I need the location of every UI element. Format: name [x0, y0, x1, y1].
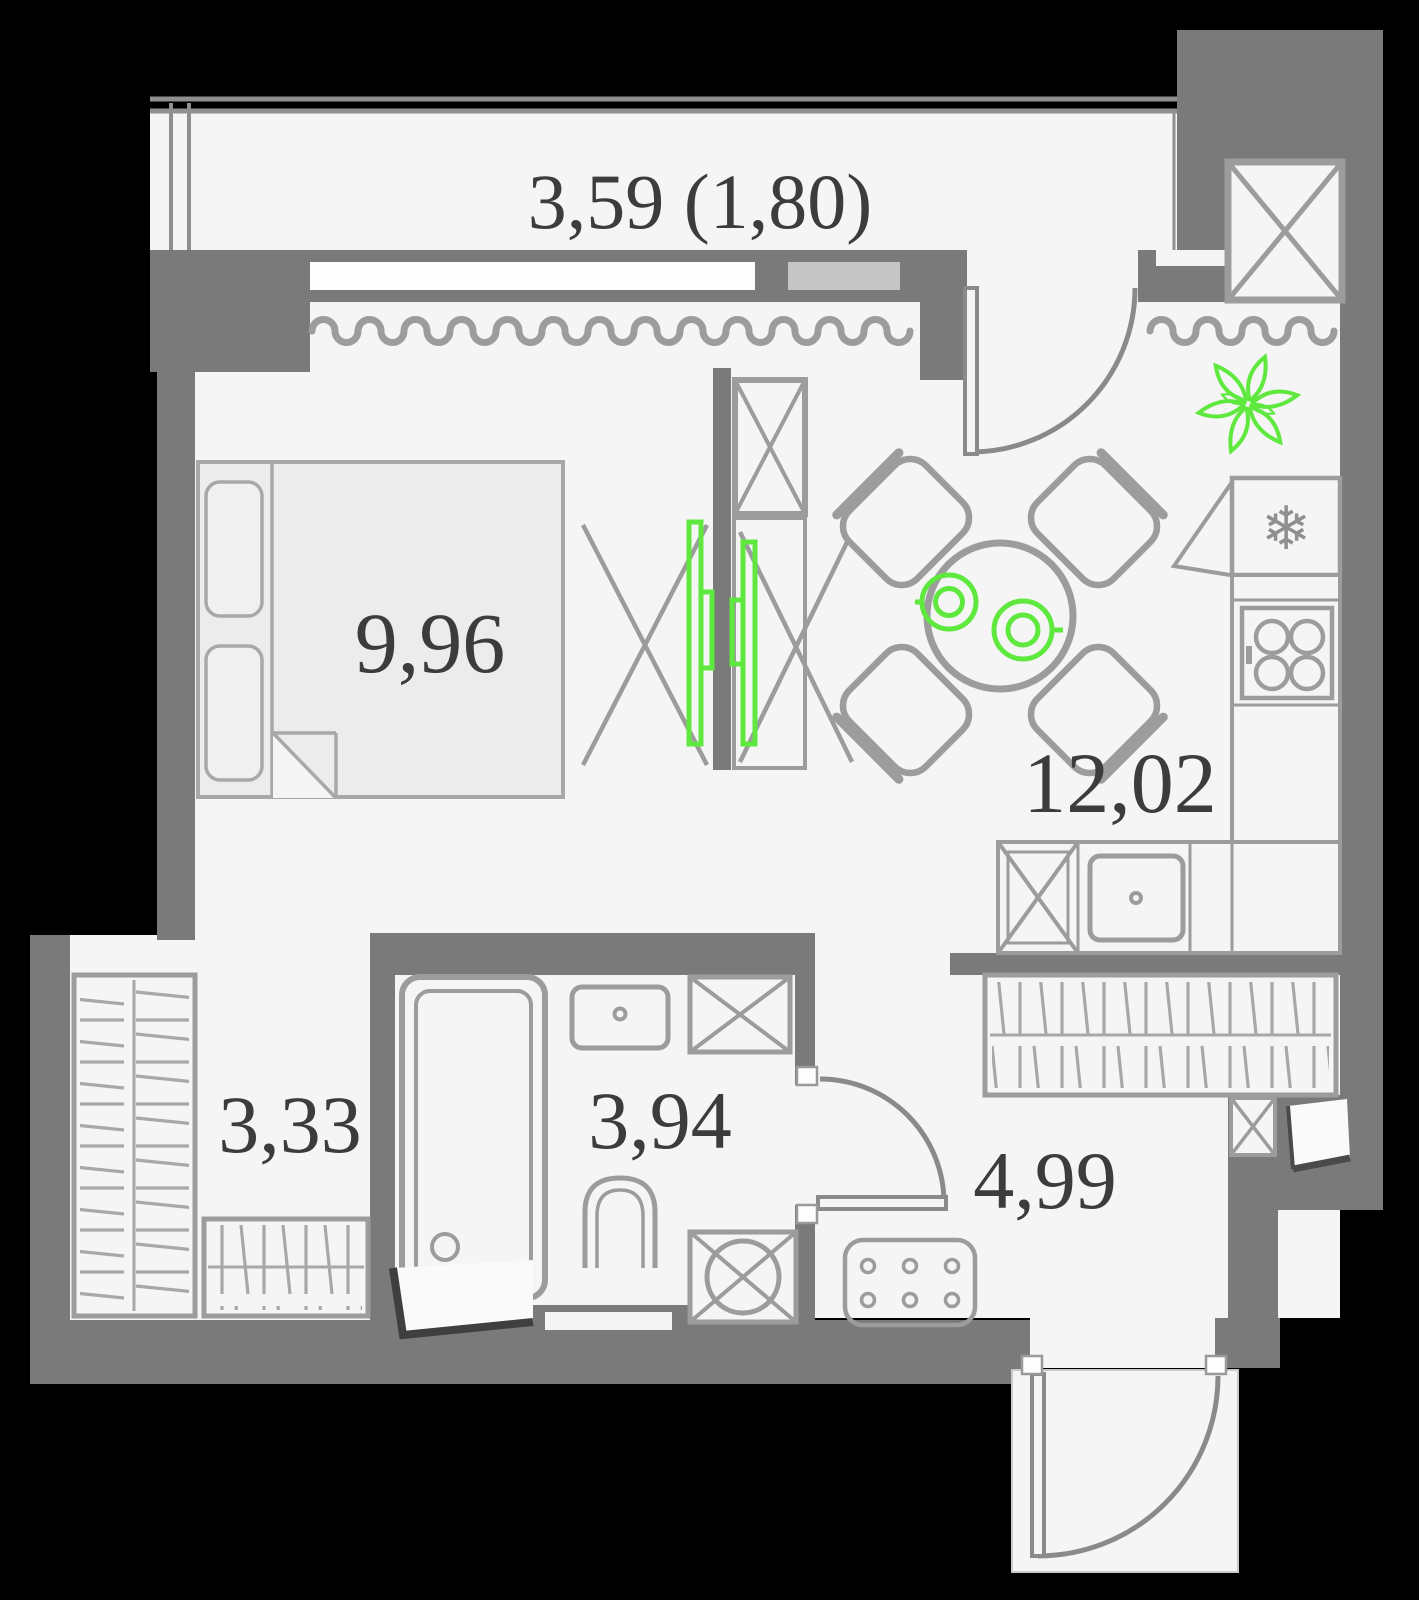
- door-jamb: [797, 1067, 817, 1085]
- shaft-tv-wall-icon: [735, 380, 805, 514]
- pillow: [206, 482, 262, 616]
- wall-right: [1340, 302, 1383, 1210]
- door-jamb: [1022, 1356, 1042, 1374]
- balcony-area-label: 3,59 (1,80): [528, 158, 872, 245]
- shaft-top-right-icon: [1228, 162, 1342, 300]
- shaft-corridor-icon: [1231, 1098, 1275, 1155]
- kitchen-counter-bottom: [998, 842, 1340, 953]
- wall-corner-right-lower: [1228, 1210, 1278, 1368]
- kitchen-area-label: 12,02: [1023, 735, 1217, 831]
- wall-pier-left: [150, 302, 310, 372]
- wall-pier-balcony-door: [920, 302, 967, 380]
- entrance-door-opening: [1030, 1318, 1215, 1368]
- bathroom-area-label: 3,94: [588, 1075, 732, 1166]
- wardrobe-corridor: [985, 975, 1336, 1095]
- wall-kitchen-corridor: [950, 953, 1340, 975]
- door-leaf: [965, 288, 977, 454]
- window-bedroom: [310, 262, 755, 290]
- wall-stub-vertical: [1138, 250, 1156, 302]
- wall-bottom: [30, 1320, 1030, 1384]
- bedroom-area-label: 9,96: [355, 595, 506, 691]
- oven-handle: [1246, 646, 1252, 664]
- door-leaf: [818, 1197, 946, 1209]
- door-threshold: [545, 1312, 672, 1330]
- balcony-door-opening: [967, 250, 1138, 302]
- hallway-area-label: 3,33: [218, 1079, 362, 1170]
- wall-niche-panel: [1288, 1099, 1350, 1169]
- wall-tv-partition: [713, 368, 731, 770]
- kitchen-counter-right: [1232, 575, 1340, 842]
- bathroom-cabinet-crossed: [690, 977, 790, 1052]
- door-jamb: [797, 1205, 817, 1223]
- wardrobe-hallway-tall: [74, 975, 195, 1316]
- wall-block-left: [30, 935, 70, 1384]
- wardrobe-hallway-small: [204, 1219, 368, 1316]
- wall-bathroom-top: [370, 933, 815, 975]
- wall-bathroom-left: [370, 960, 395, 1305]
- floor-plan: ❄: [0, 0, 1419, 1600]
- floor-plan-page: ❄: [0, 0, 1419, 1600]
- window-glass-panel: [788, 262, 900, 290]
- bathroom-door-opening: [795, 1085, 815, 1205]
- bath-mat: [393, 1260, 533, 1335]
- corridor-area-label: 4,99: [973, 1135, 1117, 1226]
- door-leaf: [1032, 1374, 1044, 1556]
- wall-notch: [1156, 250, 1226, 266]
- bathtub: [402, 977, 545, 1298]
- pillow: [206, 646, 262, 780]
- washing-machine: [690, 1232, 796, 1322]
- door-jamb: [1206, 1356, 1226, 1374]
- snowflake-icon: ❄: [1261, 494, 1311, 564]
